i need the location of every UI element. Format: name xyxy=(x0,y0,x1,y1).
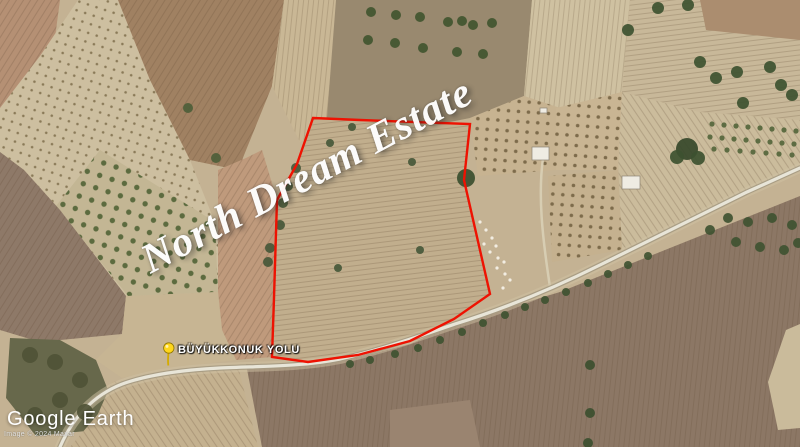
bush-row-dot xyxy=(721,122,726,127)
field-pink-mid-texture xyxy=(218,150,277,360)
bush-row-dot xyxy=(711,146,716,151)
bush-row-dot xyxy=(733,123,738,128)
white-speck xyxy=(490,236,493,239)
right-scatter-tree xyxy=(723,213,733,223)
bush-row-dot xyxy=(755,138,760,143)
band-edge-tree xyxy=(183,103,193,113)
roadside-tree xyxy=(414,344,422,352)
roadside-tree xyxy=(521,303,529,311)
top-field-tree xyxy=(478,49,488,59)
right-grove-tree xyxy=(691,151,705,165)
scrub-blob xyxy=(72,372,88,388)
bush-row-dot xyxy=(743,137,748,142)
bottom-tree-line xyxy=(585,360,595,370)
bush-row-dot xyxy=(781,127,786,132)
bush-row-dot xyxy=(776,151,781,156)
top-right-tree xyxy=(775,79,787,91)
field-top-center-pale-texture xyxy=(524,0,630,108)
white-speck xyxy=(482,242,485,245)
top-field-tree xyxy=(468,20,478,30)
bush-row-dot xyxy=(779,140,784,145)
white-speck xyxy=(501,286,504,289)
white-speck xyxy=(488,250,491,253)
top-field-tree xyxy=(443,17,453,27)
top-field-tree xyxy=(452,47,462,57)
bush-row-dot xyxy=(724,147,729,152)
top-right-tree xyxy=(622,24,634,36)
top-field-tree xyxy=(415,12,425,22)
satellite-map[interactable] xyxy=(0,0,800,447)
top-field-tree xyxy=(391,10,401,20)
roadside-tree xyxy=(391,350,399,358)
top-right-tree xyxy=(764,61,776,73)
top-right-tree xyxy=(731,66,743,78)
roadside-tree xyxy=(479,319,487,327)
scrub-blob xyxy=(52,392,68,408)
roadside-tree xyxy=(624,261,632,269)
top-field-tree xyxy=(418,43,428,53)
right-scatter-tree xyxy=(705,225,715,235)
right-scatter-tree xyxy=(767,213,777,223)
right-scatter-tree xyxy=(731,237,741,247)
right-grove-tree xyxy=(670,150,684,164)
top-right-tree xyxy=(694,56,706,68)
white-speck xyxy=(494,244,497,247)
white-speck xyxy=(478,220,481,223)
bush-row-dot xyxy=(707,134,712,139)
roadside-tree xyxy=(644,252,652,260)
left-edge-tree xyxy=(265,243,275,253)
parcel-tree xyxy=(408,158,416,166)
roadside-tree xyxy=(584,279,592,287)
google-earth-view: North Dream Estate BÜYÜKKONUK YOLU Googl… xyxy=(0,0,800,447)
top-right-tree xyxy=(737,97,749,109)
band-edge-tree xyxy=(211,153,221,163)
google-earth-logo: Google Earth xyxy=(7,408,134,431)
roadside-tree xyxy=(346,360,354,368)
bush-row-dot xyxy=(745,124,750,129)
bush-row-dot xyxy=(763,150,768,155)
roadside-tree xyxy=(501,311,509,319)
bottom-tree-line xyxy=(585,408,595,418)
parcel-tree xyxy=(416,246,424,254)
top-field-tree xyxy=(363,35,373,45)
white-speck xyxy=(503,272,506,275)
roadside-tree xyxy=(366,356,374,364)
parcel-tree xyxy=(326,139,334,147)
white-speck xyxy=(502,260,505,263)
building xyxy=(532,147,549,160)
top-field-tree xyxy=(390,38,400,48)
bush-row-dot xyxy=(737,148,742,153)
white-speck xyxy=(495,266,498,269)
yellow-pushpin-icon[interactable] xyxy=(162,342,176,367)
road-label-text: BÜYÜKKONUK YOLU xyxy=(178,344,300,356)
roadside-tree xyxy=(458,328,466,336)
field-orchard-r3-texture xyxy=(548,170,622,262)
right-scatter-tree xyxy=(755,242,765,252)
roadside-tree xyxy=(604,270,612,278)
top-field-tree xyxy=(487,18,497,28)
bush-row-dot xyxy=(793,128,798,133)
white-speck xyxy=(496,256,499,259)
top-right-tree xyxy=(786,89,798,101)
bush-row-dot xyxy=(750,149,755,154)
scrub-blob xyxy=(22,347,38,363)
left-edge-tree xyxy=(278,198,288,208)
scrub-blob xyxy=(47,354,63,370)
white-speck xyxy=(484,228,487,231)
bush-row-dot xyxy=(757,125,762,130)
bush-row-dot xyxy=(709,121,714,126)
roadside-tree xyxy=(541,296,549,304)
top-field-tree xyxy=(366,7,376,17)
right-scatter-tree xyxy=(787,220,797,230)
white-speck xyxy=(508,278,511,281)
top-field-tree xyxy=(457,16,467,26)
bush-row-dot xyxy=(719,135,724,140)
road-label: BÜYÜKKONUK YOLU xyxy=(162,342,300,367)
left-edge-tree xyxy=(263,257,273,267)
parcel-tree xyxy=(348,123,356,131)
roadside-tree xyxy=(436,336,444,344)
building xyxy=(540,108,547,113)
building xyxy=(622,176,640,189)
top-right-tree xyxy=(710,72,722,84)
roadside-tree xyxy=(562,288,570,296)
bush-row-dot xyxy=(791,141,796,146)
top-right-tree xyxy=(652,2,664,14)
parcel-tree xyxy=(334,264,342,272)
right-scatter-tree xyxy=(743,217,753,227)
imagery-attribution: Image © 2024 Maxar xyxy=(4,431,75,438)
bush-row-dot xyxy=(731,136,736,141)
bush-row-dot xyxy=(789,152,794,157)
bush-row-dot xyxy=(769,126,774,131)
right-scatter-tree xyxy=(779,245,789,255)
bush-row-dot xyxy=(767,139,772,144)
